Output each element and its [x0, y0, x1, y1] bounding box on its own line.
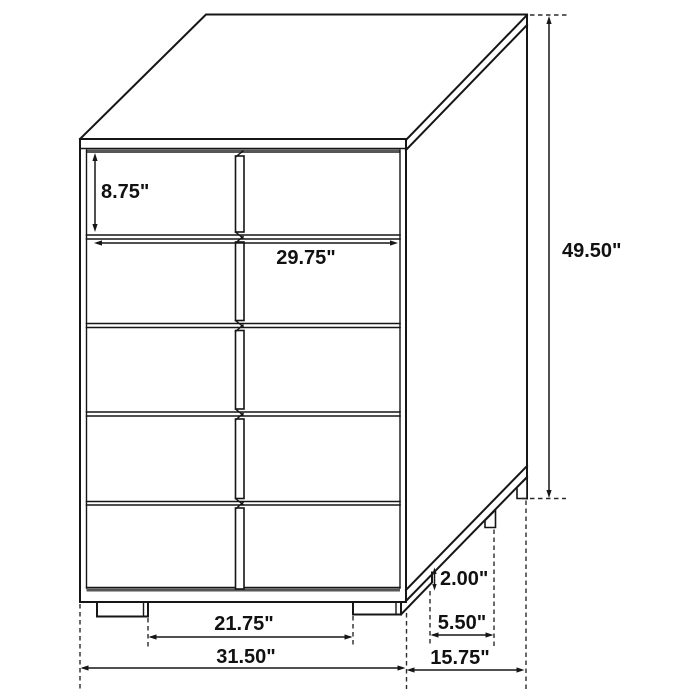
- drawer-handle-1: [236, 151, 245, 238]
- drawer-handle-2: [236, 237, 245, 327]
- arrow-left-icon: [94, 240, 102, 245]
- drawer-handle-4: [236, 414, 245, 505]
- arrow-up-icon: [546, 16, 551, 24]
- arrow-right-icon: [517, 667, 525, 672]
- overall-depth-label: 15.75": [430, 647, 490, 669]
- drawer-handles: [236, 151, 245, 589]
- arrow-right-icon: [398, 665, 406, 670]
- chest-drawing: [80, 15, 527, 617]
- arrow-up-icon: [92, 153, 97, 161]
- drawer-handle-5: [236, 503, 245, 590]
- chest-top-face: [80, 15, 527, 140]
- arrow-right-icon: [390, 240, 398, 245]
- chest-side-panel: [406, 15, 527, 602]
- dim-drawer-width: 29.75": [94, 240, 398, 269]
- arrow-down-icon: [546, 490, 551, 498]
- diagram-canvas: 8.75" 29.75" 49.50": [0, 0, 700, 700]
- arrow-down-icon: [92, 224, 97, 232]
- front-left-foot: [97, 602, 148, 617]
- dimension-diagram: 8.75" 29.75" 49.50": [0, 0, 700, 700]
- dim-front-foot-spacing: 21.75": [148, 613, 353, 647]
- drawer-handle-3: [236, 325, 245, 415]
- dim-overall-height: 49.50": [522, 15, 622, 499]
- arrow-down-icon: [432, 584, 436, 591]
- dim-drawer-height: 8.75": [92, 153, 149, 232]
- side-foot-spacing-label: 5.50": [438, 612, 486, 634]
- arrow-left-icon: [407, 667, 415, 672]
- dim-foot-height: 2.00": [432, 568, 488, 591]
- drawer-height-label: 8.75": [101, 181, 149, 203]
- side-back-foot: [517, 478, 527, 499]
- arrow-right-icon: [486, 632, 494, 637]
- arrow-right-icon: [345, 634, 353, 639]
- overall-height-label: 49.50": [562, 240, 622, 262]
- arrow-left-icon: [81, 665, 89, 670]
- front-foot-spacing-label: 21.75": [214, 613, 274, 635]
- drawer-width-label: 29.75": [276, 247, 336, 269]
- overall-width-label: 31.50": [216, 646, 276, 668]
- foot-height-label: 2.00": [440, 568, 488, 590]
- chest-feet: [97, 478, 527, 617]
- front-right-foot: [353, 573, 432, 615]
- side-middle-foot: [485, 510, 496, 528]
- arrow-left-icon: [149, 634, 157, 639]
